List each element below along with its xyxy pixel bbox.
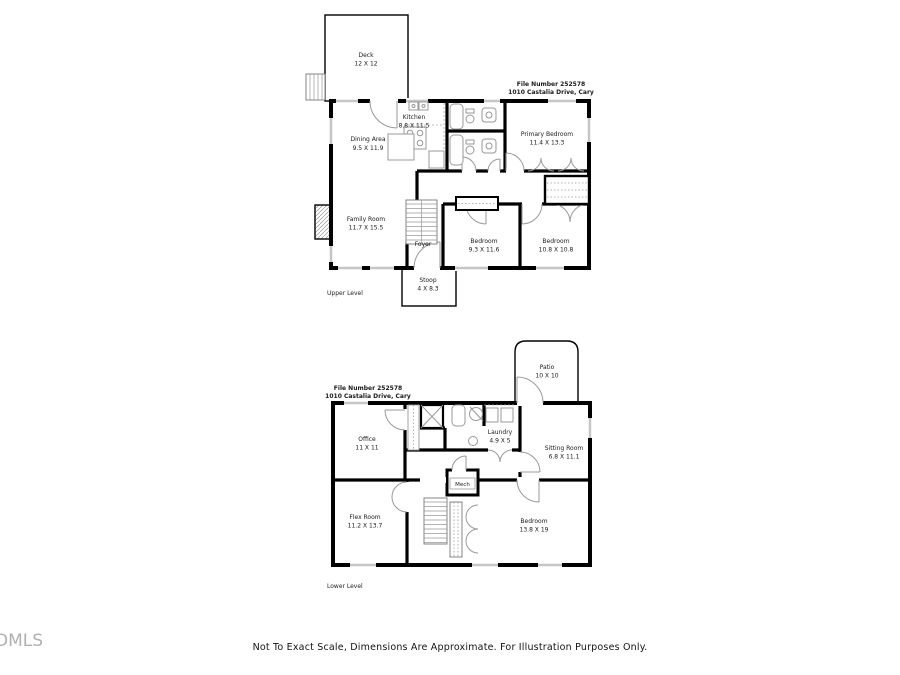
kitchen-dims: 8.8 X 11.5 xyxy=(399,123,430,130)
office-dims: 11 X 11 xyxy=(355,445,378,452)
family-room-label: Family Room xyxy=(347,216,385,223)
bedroom2-closet-doors xyxy=(552,204,588,222)
deck-dims: 12 X 12 xyxy=(354,61,377,68)
lower-bedroom-door-swing xyxy=(517,480,539,502)
office-label: Office xyxy=(358,436,376,443)
bath-inner-wall xyxy=(420,428,445,450)
bedroom1-dims: 9.3 X 11.6 xyxy=(469,247,500,254)
upper-bath-fixtures xyxy=(450,104,496,165)
dining-label: Dining Area xyxy=(350,136,385,143)
fireplace xyxy=(315,205,331,239)
family-room-dims: 11.7 X 15.5 xyxy=(349,225,384,232)
tub-2 xyxy=(450,135,463,165)
upper-stairs xyxy=(406,200,437,244)
upper-level-label: Upper Level xyxy=(327,290,363,297)
deck-outline xyxy=(306,15,408,101)
laundry-label: Laundry xyxy=(488,429,513,436)
kitchen-fixtures xyxy=(388,102,444,168)
floorplan-page: Deck 12 X 12 File Number 252578 1010 Cas… xyxy=(0,0,900,675)
dryer xyxy=(501,408,513,422)
lower-level-label: Lower Level xyxy=(327,583,363,590)
stoop-label: Stoop xyxy=(419,277,437,284)
patio-dims: 10 X 10 xyxy=(535,373,558,380)
bedroom2-label: Bedroom xyxy=(542,238,569,245)
toilet-1 xyxy=(466,115,474,123)
flex-room-dims: 11.2 X 13.7 xyxy=(348,523,383,530)
bifold-closet-doors xyxy=(466,505,478,553)
kitchen-island xyxy=(388,134,414,160)
lower-tub xyxy=(452,405,465,426)
upper-file-number: File Number 252578 xyxy=(517,81,585,88)
lower-level-plan: Patio 10 X 10 File Number 252578 1010 Ca… xyxy=(325,341,590,590)
deck-label: Deck xyxy=(358,52,374,59)
primary-bedroom-label: Primary Bedroom xyxy=(521,131,573,138)
floorplan-canvas: Deck 12 X 12 File Number 252578 1010 Cas… xyxy=(0,0,900,675)
tub-1 xyxy=(450,104,463,129)
primary-closet1-doors xyxy=(528,158,554,171)
refrigerator xyxy=(429,151,444,168)
flex-room-label: Flex Room xyxy=(349,514,380,521)
lower-address: 1010 Castalia Drive, Cary xyxy=(325,393,411,400)
lower-sink xyxy=(469,437,478,446)
mech-room xyxy=(447,456,478,495)
patio-door-swing xyxy=(517,377,543,403)
lower-closet-strip xyxy=(450,502,462,557)
laundry-dims: 4.9 X 5 xyxy=(489,438,510,445)
disclaimer-text: Not To Exact Scale, Dimensions Are Appro… xyxy=(0,642,900,653)
washer xyxy=(486,408,498,422)
upper-level-plan: Deck 12 X 12 File Number 252578 1010 Cas… xyxy=(306,15,594,306)
upper-address: 1010 Castalia Drive, Cary xyxy=(508,89,594,96)
lower-file-number: File Number 252578 xyxy=(334,385,402,392)
stoop-dims: 4 X 8.3 xyxy=(417,286,438,293)
sitting-room-dims: 6.8 X 11.1 xyxy=(549,454,580,461)
lower-stairs xyxy=(424,498,478,557)
toilet-2 xyxy=(466,146,474,154)
bedroom1-label: Bedroom xyxy=(470,238,497,245)
deck-door-swing xyxy=(370,101,397,128)
dining-dims: 9.5 X 11.9 xyxy=(353,145,384,152)
lower-bedroom-dims: 13.8 X 19 xyxy=(520,527,549,534)
sitting-room-label: Sitting Room xyxy=(545,445,584,452)
patio-label: Patio xyxy=(540,364,555,371)
foyer-label: Foyer xyxy=(415,241,432,248)
lower-bedroom-label: Bedroom xyxy=(520,518,547,525)
primary-closet2-doors xyxy=(558,158,584,171)
bedroom2-dims: 10.8 X 10.8 xyxy=(539,247,574,254)
kitchen-label: Kitchen xyxy=(403,114,426,121)
mech-label: Mech xyxy=(455,482,470,488)
primary-bedroom-dims: 11.4 X 13.3 xyxy=(530,140,565,147)
